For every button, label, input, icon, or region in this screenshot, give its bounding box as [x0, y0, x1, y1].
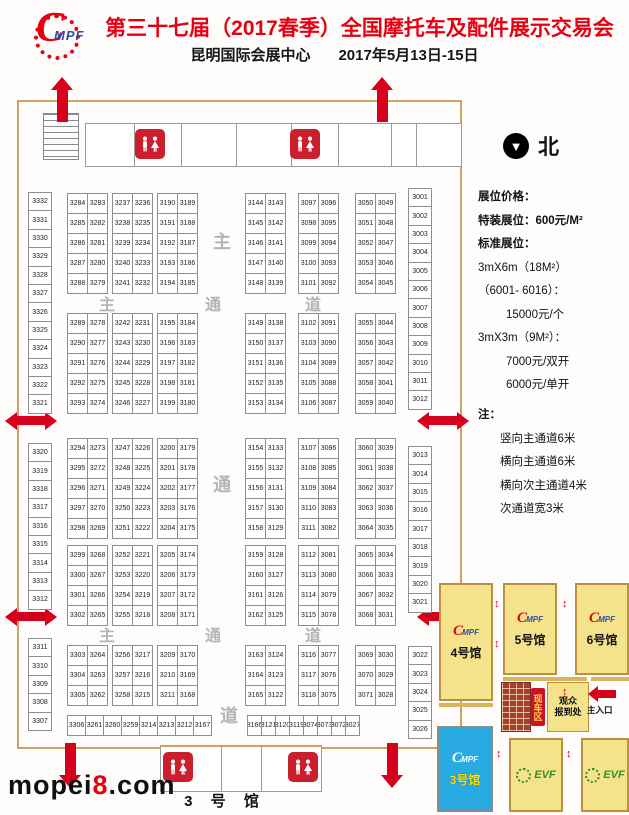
aisle-arrow-icon [17, 612, 45, 621]
booth-cell: 3105 [299, 374, 319, 394]
booth-cell: 3178 [178, 459, 198, 479]
booth-grid: 3289327832903277329132763292327532933274 [67, 313, 108, 414]
booth-cell: 3182 [178, 354, 198, 374]
booth-grid: 3154313331553132315631313157313031583129 [245, 438, 286, 539]
booth-cell: 3116 [299, 646, 319, 666]
booth-grid: 3284328332853282328632813287328032883279 [67, 193, 108, 294]
corridor-arrow-icon: ↕ [494, 598, 500, 610]
booth-cell: 3134 [266, 394, 286, 414]
booth-cell: 3007 [409, 299, 432, 317]
booth-cell: 3129 [266, 519, 286, 539]
booth-cell: 3162 [246, 606, 266, 626]
booth-cell: 3190 [158, 194, 178, 214]
booth-grid: 3242323132433230324432293245322832463227 [112, 313, 153, 414]
booth-cell: 3133 [266, 439, 286, 459]
booth-cell: 3176 [178, 499, 198, 519]
booth-cell: 3038 [376, 459, 396, 479]
booth-cell: 3276 [88, 354, 108, 374]
booth-cell: 3219 [133, 586, 153, 606]
booth-cell: 3286 [68, 234, 88, 254]
booth-grid: 3149313831503137315131363152313531533134 [245, 313, 286, 414]
booth-cell: 3090 [319, 334, 339, 354]
booth-cell: 3066 [356, 566, 376, 586]
booth-cell: 3210 [158, 666, 178, 686]
booth-cell: 3111 [299, 519, 319, 539]
booth-cell: 3283 [88, 194, 108, 214]
booth-cell: 3180 [178, 394, 198, 414]
booth-cell: 3203 [158, 499, 178, 519]
booth-cell: 3005 [409, 263, 432, 281]
booth-cell: 3314 [29, 554, 52, 572]
booth-grid: 3001300230033004300530063007300830093010… [408, 188, 432, 410]
booth-cell: 3095 [319, 214, 339, 234]
booth-cell: 3308 [29, 694, 52, 712]
booth-grid: 3102309131033090310430893105308831063087 [298, 313, 339, 414]
legend-line: 次通道宽3米 [478, 500, 626, 516]
booth-cell: 3130 [266, 499, 286, 519]
corridor-arrow-icon: ↕ [496, 748, 502, 760]
booth-cell: 3240 [113, 254, 133, 274]
booth-cell: 3191 [158, 214, 178, 234]
watermark-text: 8 [93, 770, 109, 800]
aisle-label: 主 [213, 228, 231, 254]
booth-cell: 3031 [376, 606, 396, 626]
booth-cell: 3234 [133, 234, 153, 254]
legend-line: 展位价格： [478, 188, 626, 204]
wall [221, 747, 222, 791]
legend-line: 横向次主通道4米 [478, 477, 626, 493]
booth-grid: 3294327332953272329632713297327032983269 [67, 438, 108, 539]
booth-cell: 3285 [68, 214, 88, 234]
booth-cell: 3227 [133, 394, 153, 414]
booth-cell: 3087 [319, 394, 339, 414]
booth-cell: 3137 [266, 334, 286, 354]
booth-cell: 3243 [113, 334, 133, 354]
booth-grid: 3332333133303329332833273326332533243323… [28, 192, 52, 414]
booth-cell: 3119 [290, 716, 304, 736]
booth-cell: 3302 [68, 606, 88, 626]
booth-cell: 3310 [29, 657, 52, 675]
wall [236, 124, 237, 166]
booth-cell: 3330 [29, 230, 52, 248]
booth-cell: 3329 [29, 248, 52, 266]
watermark-text: .com [109, 770, 176, 800]
booth-grid: 31663121312031193074307330723027 [247, 715, 360, 736]
booth-grid: 316331243164312331653122 [245, 645, 286, 706]
booth-cell: 3328 [29, 267, 52, 285]
booth-cell: 3035 [376, 519, 396, 539]
booth-cell: 3161 [246, 586, 266, 606]
legend-line: 7000元/双开 [478, 353, 626, 369]
booth-cell: 3174 [178, 546, 198, 566]
booth-cell: 3303 [68, 646, 88, 666]
booth-cell: 3317 [29, 499, 52, 517]
booth-cell: 3101 [299, 274, 319, 294]
wall [391, 124, 392, 166]
booth-cell: 3267 [88, 566, 108, 586]
booth-cell: 3045 [376, 274, 396, 294]
floor-plan: 主 通 道 主 通 道 主 通 道 3284328332853282328632… [15, 88, 465, 793]
booth-cell: 3151 [246, 354, 266, 374]
booth-cell: 3172 [178, 586, 198, 606]
booth-cell: 3015 [409, 484, 432, 502]
booth-cell: 3305 [68, 686, 88, 706]
booth-grid: 3097309630983095309930943100309331013092 [298, 193, 339, 294]
logo-letters-mpf: MPF [462, 628, 479, 637]
booth-cell: 3098 [299, 214, 319, 234]
booth-cell: 3167 [194, 716, 212, 736]
booth-cell: 3158 [246, 519, 266, 539]
booth-cell: 3084 [319, 479, 339, 499]
booth-cell: 3270 [88, 499, 108, 519]
booth-cell: 3175 [178, 519, 198, 539]
north-label: 北 [538, 131, 559, 161]
booth-cell: 3140 [266, 254, 286, 274]
booth-cell: 3272 [88, 459, 108, 479]
mini-hall-3: CMPF 3号馆 [437, 726, 493, 812]
booth-grid: 3247322632483225324932243250322332513222 [112, 438, 153, 539]
booth-cell: 3237 [113, 194, 133, 214]
page-title: 第三十七届（2017春季）全国摩托车及配件展示交易会 [96, 12, 623, 42]
booth-cell: 3091 [319, 314, 339, 334]
booth-cell: 3185 [178, 274, 198, 294]
laurel-icon [516, 768, 531, 783]
booth-cell: 3145 [246, 214, 266, 234]
booth-grid: 33063261326032593214321332123167 [67, 715, 212, 736]
booth-cell: 3225 [133, 459, 153, 479]
booth-cell: 3025 [409, 702, 432, 720]
legend-line: 3mX3m（9M²）： [478, 329, 626, 345]
booth-cell: 3256 [113, 646, 133, 666]
booth-cell: 3295 [68, 459, 88, 479]
mini-hall-label: 6号馆 [587, 631, 618, 648]
booth-cell: 3046 [376, 254, 396, 274]
wall [181, 124, 182, 166]
booth-cell: 3232 [133, 274, 153, 294]
booth-cell: 3037 [376, 479, 396, 499]
booth-cell: 3294 [68, 439, 88, 459]
booth-cell: 3117 [299, 666, 319, 686]
evf-logo-icon: EVF [585, 768, 624, 783]
booth-cell: 3059 [356, 394, 376, 414]
booth-cell: 3166 [248, 716, 262, 736]
booth-cell: 3242 [113, 314, 133, 334]
booth-cell: 3331 [29, 211, 52, 229]
booth-cell: 3053 [356, 254, 376, 274]
booth-cell: 3139 [266, 274, 286, 294]
booth-cell: 3018 [409, 539, 432, 557]
legend-line: 注： [478, 406, 626, 422]
booth-cell: 3152 [246, 374, 266, 394]
booth-cell: 3142 [266, 214, 286, 234]
booth-grid: 325632173257321632583215 [112, 645, 153, 706]
booth-cell: 3212 [176, 716, 194, 736]
aisle-label: 通 [205, 291, 221, 315]
mini-hall-label: 5号馆 [515, 631, 546, 648]
booth-cell: 3008 [409, 318, 432, 336]
booth-cell: 3208 [158, 606, 178, 626]
booth-grid: 31593128316031273161312631623125 [245, 545, 286, 626]
booth-cell: 3244 [113, 354, 133, 374]
booth-cell: 3051 [356, 214, 376, 234]
booth-cell: 3160 [246, 566, 266, 586]
booth-cell: 3321 [29, 395, 52, 413]
booth-cell: 3269 [88, 519, 108, 539]
booth-cell: 3102 [299, 314, 319, 334]
registration-building [501, 682, 531, 732]
logo-letters-mpf: MPF [526, 615, 543, 624]
mini-map: CMPF 4号馆 CMPF 5号馆 CMPF 6号馆 现车区 观众 报到处 主入… [435, 578, 629, 815]
legend-line: 标准展位： [478, 235, 626, 251]
booth-cell: 3058 [356, 374, 376, 394]
booth-cell: 3293 [68, 394, 88, 414]
compass-icon: ▼ [503, 133, 529, 159]
booth-cell: 3131 [266, 479, 286, 499]
booth-cell: 3107 [299, 439, 319, 459]
booth-grid: 3107308631083085310930843110308331113082 [298, 438, 339, 539]
booth-cell: 3205 [158, 546, 178, 566]
booth-cell: 3250 [113, 499, 133, 519]
legend-line: 3mX6m（18M²） [478, 259, 626, 275]
booth-cell: 3034 [376, 546, 396, 566]
booth-grid: 3055304430563043305730423058304130593040 [355, 313, 396, 414]
booth-cell: 3041 [376, 374, 396, 394]
booth-cell: 3268 [88, 546, 108, 566]
booth-cell: 3001 [409, 189, 432, 207]
mini-hall-4: CMPF 4号馆 [439, 583, 493, 701]
booth-cell: 3257 [113, 666, 133, 686]
booth-cell: 3044 [376, 314, 396, 334]
booth-cell: 3187 [178, 234, 198, 254]
booth-cell: 3043 [376, 334, 396, 354]
booth-cell: 3229 [133, 354, 153, 374]
booth-grid: 330332643304326333053262 [67, 645, 108, 706]
booth-cell: 3332 [29, 193, 52, 211]
display-zone-label: 现车区 [531, 688, 545, 726]
booth-cell: 3081 [319, 546, 339, 566]
booth-cell: 3288 [68, 274, 88, 294]
booth-cell: 3143 [266, 194, 286, 214]
booth-cell: 3215 [133, 686, 153, 706]
booth-cell: 3065 [356, 546, 376, 566]
corridor-arrow-icon: ↕ [562, 686, 568, 698]
booth-cell: 3218 [133, 606, 153, 626]
booth-cell: 3274 [88, 394, 108, 414]
booth-cell: 3290 [68, 334, 88, 354]
booth-cell: 3030 [376, 646, 396, 666]
booth-cell: 3196 [158, 334, 178, 354]
booth-cell: 3027 [346, 716, 360, 736]
corridor-arrow-icon: ↕ [562, 598, 568, 610]
corridor-arrow-icon: ↕ [566, 748, 572, 760]
booth-cell: 3213 [158, 716, 176, 736]
booth-cell: 3238 [113, 214, 133, 234]
booth-cell: 3127 [266, 566, 286, 586]
booth-cell: 3009 [409, 336, 432, 354]
north-indicator: ▼ 北 [503, 131, 559, 161]
booth-cell: 3156 [246, 479, 266, 499]
booth-cell: 3057 [356, 354, 376, 374]
date-label: 2017年5月13日-15日 [338, 47, 478, 64]
legend-line: 15000元/个 [478, 306, 626, 322]
booth-cell: 3209 [158, 646, 178, 666]
booth-grid: 306930303070302930713028 [355, 645, 396, 706]
booth-cell: 3096 [319, 194, 339, 214]
booth-grid: 3195318431963183319731823198318131993180 [157, 313, 198, 414]
booth-cell: 3277 [88, 334, 108, 354]
booth-cell: 3217 [133, 646, 153, 666]
booth-cell: 3189 [178, 194, 198, 214]
booth-cell: 3201 [158, 459, 178, 479]
booth-cell: 3327 [29, 285, 52, 303]
booth-cell: 3004 [409, 244, 432, 262]
cmpf-logo-icon: CMPF [452, 750, 478, 767]
booth-cell: 3320 [29, 444, 52, 462]
booth-cell: 3026 [409, 721, 432, 739]
logo-letters-mpf: MPF [54, 28, 84, 43]
booth-grid: 30653034306630333067303230683031 [355, 545, 396, 626]
booth-grid: 3050304930513048305230473053304630543045 [355, 193, 396, 294]
main-entrance-label: 主入口 [587, 704, 613, 716]
booth-cell: 3216 [133, 666, 153, 686]
booth-cell: 3315 [29, 536, 52, 554]
booth-cell: 3282 [88, 214, 108, 234]
booth-cell: 3097 [299, 194, 319, 214]
booth-cell: 3195 [158, 314, 178, 334]
booth-cell: 3245 [113, 374, 133, 394]
booth-grid: 301330143015301630173018301930203021 [408, 446, 432, 613]
booth-cell: 3114 [299, 586, 319, 606]
booth-cell: 3103 [299, 334, 319, 354]
booth-cell: 3150 [246, 334, 266, 354]
booth-cell: 3112 [299, 546, 319, 566]
booth-cell: 3260 [104, 716, 122, 736]
booth-cell: 3289 [68, 314, 88, 334]
booth-cell: 3318 [29, 481, 52, 499]
booth-cell: 3124 [266, 646, 286, 666]
booth-cell: 3020 [409, 576, 432, 594]
booth-cell: 3170 [178, 646, 198, 666]
booth-cell: 3052 [356, 234, 376, 254]
booth-cell: 3068 [356, 606, 376, 626]
booth-cell: 3236 [133, 194, 153, 214]
booth-cell: 3113 [299, 566, 319, 586]
booth-cell: 3177 [178, 479, 198, 499]
booth-cell: 3148 [246, 274, 266, 294]
booth-cell: 3061 [356, 459, 376, 479]
booth-cell: 3323 [29, 359, 52, 377]
booth-cell: 3173 [178, 566, 198, 586]
booth-grid: 31123081311330803114307931153078 [298, 545, 339, 626]
booth-cell: 3194 [158, 274, 178, 294]
booth-cell: 3012 [409, 391, 432, 409]
booth-grid: 3144314331453142314631413147314031483139 [245, 193, 286, 294]
booth-cell: 3115 [299, 606, 319, 626]
booth-cell: 3047 [376, 234, 396, 254]
mini-hall-evf-1: EVF [509, 738, 563, 812]
booth-cell: 3255 [113, 606, 133, 626]
booth-cell: 3078 [319, 606, 339, 626]
main-entrance-arrow-icon [598, 690, 616, 698]
booth-cell: 3198 [158, 374, 178, 394]
booth-cell: 3077 [319, 646, 339, 666]
booth-cell: 3252 [113, 546, 133, 566]
registration-text: 报到处 [554, 707, 581, 717]
booth-cell: 3071 [356, 686, 376, 706]
booth-cell: 3085 [319, 459, 339, 479]
booth-cell: 3067 [356, 586, 376, 606]
booth-cell: 3188 [178, 214, 198, 234]
legend-line: （6001- 6016）： [478, 282, 626, 298]
booth-cell: 3204 [158, 519, 178, 539]
booth-cell: 3028 [376, 686, 396, 706]
booth-cell: 3146 [246, 234, 266, 254]
booth-cell: 3296 [68, 479, 88, 499]
laurel-icon [585, 768, 600, 783]
booth-cell: 3126 [266, 586, 286, 606]
booth-cell: 3171 [178, 606, 198, 626]
booth-grid: 3200317932013178320231773203317632043175 [157, 438, 198, 539]
booth-cell: 3241 [113, 274, 133, 294]
booth-cell: 3029 [376, 666, 396, 686]
booth-cell: 3231 [133, 314, 153, 334]
booth-cell: 3040 [376, 394, 396, 414]
booth-cell: 3200 [158, 439, 178, 459]
booth-cell: 3165 [246, 686, 266, 706]
mini-hall-label: 4号馆 [451, 644, 482, 661]
booth-grid: 30223023302430253026 [408, 646, 432, 739]
booth-cell: 3292 [68, 374, 88, 394]
booth-cell: 3073 [318, 716, 332, 736]
booth-grid: 32523221325332203254321932553218 [112, 545, 153, 626]
booth-cell: 3056 [356, 334, 376, 354]
booth-cell: 3220 [133, 566, 153, 586]
booth-cell: 3301 [68, 586, 88, 606]
booth-cell: 3055 [356, 314, 376, 334]
restroom-icon [135, 129, 165, 159]
booth-cell: 3063 [356, 499, 376, 519]
aisle-label: 道 [220, 702, 238, 728]
booth-cell: 3011 [409, 373, 432, 391]
booth-cell: 3121 [262, 716, 276, 736]
mini-hall-label: 3号馆 [450, 771, 481, 788]
booth-cell: 3021 [409, 594, 432, 612]
booth-cell: 3022 [409, 647, 432, 665]
booth-cell: 3118 [299, 686, 319, 706]
booth-grid: 3060303930613038306230373063303630643035 [355, 438, 396, 539]
booth-cell: 3136 [266, 354, 286, 374]
booth-cell: 3324 [29, 340, 52, 358]
booth-cell: 3326 [29, 303, 52, 321]
booth-cell: 3108 [299, 459, 319, 479]
booth-cell: 3094 [319, 234, 339, 254]
booth-cell: 3123 [266, 666, 286, 686]
booth-cell: 3297 [68, 499, 88, 519]
booth-cell: 3104 [299, 354, 319, 374]
booth-cell: 3079 [319, 586, 339, 606]
logo-letters-mpf: MPF [598, 615, 615, 624]
booth-cell: 3141 [266, 234, 286, 254]
booth-cell: 3135 [266, 374, 286, 394]
booth-cell: 3228 [133, 374, 153, 394]
booth-cell: 3064 [356, 519, 376, 539]
aisle-label: 通 [205, 622, 221, 646]
booth-cell: 3003 [409, 226, 432, 244]
booth-cell: 3088 [319, 374, 339, 394]
booth-cell: 3014 [409, 465, 432, 483]
booth-cell: 3291 [68, 354, 88, 374]
booth-cell: 3254 [113, 586, 133, 606]
